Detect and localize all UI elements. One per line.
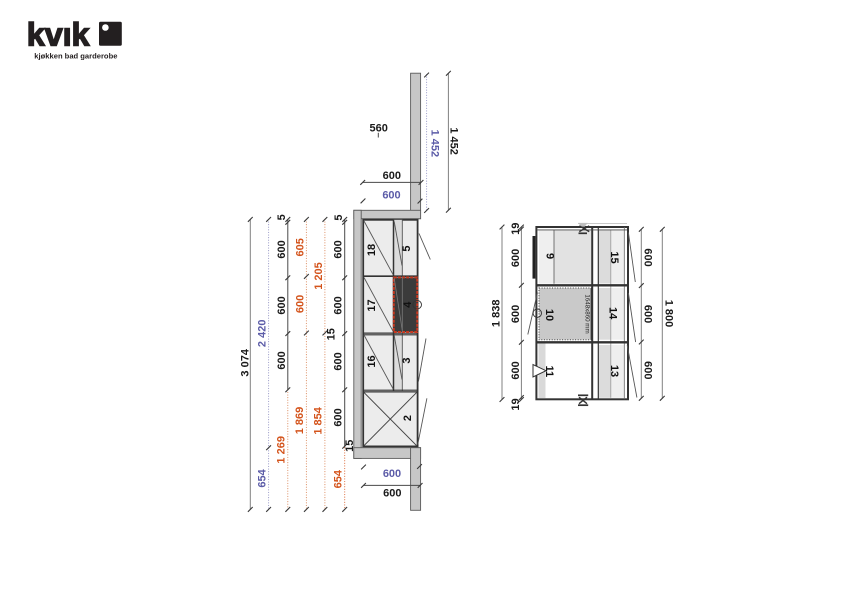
svg-text:15: 15 bbox=[326, 328, 338, 340]
svg-text:654: 654 bbox=[332, 469, 344, 488]
svg-text:5: 5 bbox=[276, 214, 288, 220]
svg-text:kjøkken bad garderobe: kjøkken bad garderobe bbox=[34, 51, 117, 60]
svg-text:600: 600 bbox=[383, 487, 401, 499]
svg-text:19: 19 bbox=[510, 223, 522, 235]
svg-text:1 452: 1 452 bbox=[447, 127, 459, 155]
svg-text:1 205: 1 205 bbox=[313, 262, 325, 290]
svg-text:600: 600 bbox=[510, 305, 522, 323]
svg-text:600: 600 bbox=[510, 361, 522, 379]
svg-text:600: 600 bbox=[276, 296, 288, 314]
svg-text:13: 13 bbox=[608, 365, 620, 377]
svg-text:600: 600 bbox=[642, 361, 654, 379]
svg-text:4: 4 bbox=[402, 301, 414, 308]
svg-text:1 838: 1 838 bbox=[491, 300, 503, 328]
svg-text:600: 600 bbox=[642, 305, 654, 323]
svg-text:600: 600 bbox=[383, 468, 401, 480]
svg-text:14: 14 bbox=[606, 307, 618, 320]
svg-text:10: 10 bbox=[543, 309, 555, 321]
svg-text:600: 600 bbox=[510, 249, 522, 267]
svg-text:9: 9 bbox=[544, 253, 556, 259]
svg-text:600: 600 bbox=[332, 352, 344, 370]
svg-text:5: 5 bbox=[401, 246, 413, 252]
svg-text:654: 654 bbox=[257, 468, 269, 487]
svg-text:600: 600 bbox=[332, 408, 344, 426]
svg-text:600: 600 bbox=[276, 351, 288, 369]
svg-text:19: 19 bbox=[510, 398, 522, 410]
svg-text:2: 2 bbox=[402, 415, 414, 421]
svg-text:600: 600 bbox=[276, 240, 288, 258]
svg-text:5: 5 bbox=[333, 215, 345, 221]
svg-text:605: 605 bbox=[295, 238, 307, 256]
svg-text:1 800: 1 800 bbox=[663, 300, 675, 328]
svg-text:16: 16 bbox=[366, 355, 378, 367]
svg-text:2 420: 2 420 bbox=[257, 320, 269, 348]
svg-text:600: 600 bbox=[382, 189, 400, 201]
svg-text:15: 15 bbox=[608, 251, 620, 263]
svg-text:1 452: 1 452 bbox=[429, 130, 441, 158]
svg-text:3: 3 bbox=[401, 357, 413, 363]
svg-text:18: 18 bbox=[366, 244, 378, 256]
svg-text:600: 600 bbox=[383, 170, 401, 182]
svg-text:1 854: 1 854 bbox=[313, 406, 325, 434]
svg-text:1 869: 1 869 bbox=[294, 407, 306, 435]
svg-text:560: 560 bbox=[370, 122, 388, 134]
svg-text:600: 600 bbox=[332, 240, 344, 258]
svg-text:11: 11 bbox=[543, 365, 555, 377]
svg-text:kvık: kvık bbox=[27, 17, 91, 53]
svg-text:600: 600 bbox=[295, 295, 307, 313]
svg-text:1 269: 1 269 bbox=[276, 436, 288, 464]
svg-text:15: 15 bbox=[344, 440, 356, 452]
svg-text:17: 17 bbox=[366, 299, 378, 311]
svg-text:1648x860 mm: 1648x860 mm bbox=[584, 294, 591, 333]
svg-text:3 074: 3 074 bbox=[239, 348, 251, 376]
svg-text:600: 600 bbox=[332, 296, 344, 314]
svg-text:600: 600 bbox=[642, 248, 654, 266]
